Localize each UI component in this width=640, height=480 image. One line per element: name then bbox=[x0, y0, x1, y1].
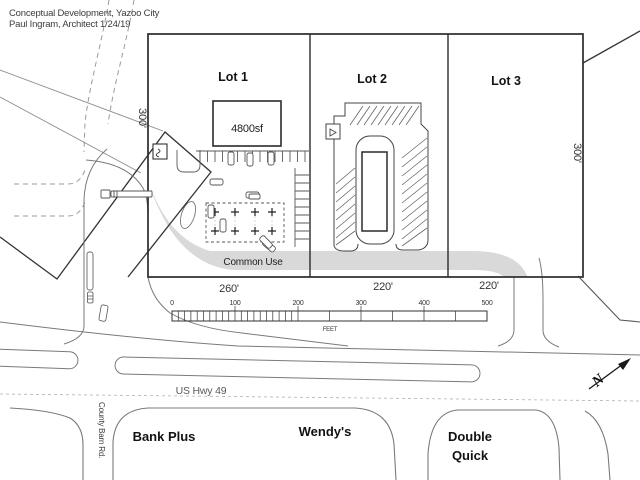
dimension-lot3-width: 220' bbox=[479, 280, 499, 292]
site-plan-sheet: 0 100 200 300 400 500 FEET N Conceptual … bbox=[0, 0, 640, 480]
title-line-1: Conceptual Development, Yazoo City bbox=[9, 8, 160, 19]
highway-label: US Hwy 49 bbox=[176, 385, 227, 397]
common-use-label: Common Use bbox=[223, 257, 283, 268]
scale-tick-0: 0 bbox=[170, 300, 174, 307]
dimension-left-depth: 300' bbox=[136, 108, 148, 128]
lot-3-label: Lot 3 bbox=[491, 74, 521, 88]
scale-unit-label: FEET bbox=[323, 327, 338, 333]
business-wendys-label: Wendy's bbox=[299, 424, 352, 439]
title-line-2: Paul Ingram, Architect 1/24/19 bbox=[9, 19, 130, 30]
highway-median-1 bbox=[0, 348, 78, 369]
dimension-lot2-width: 220' bbox=[373, 281, 393, 293]
cart-corral bbox=[326, 124, 340, 139]
scale-tick-100: 100 bbox=[229, 300, 240, 307]
lot-2-label: Lot 2 bbox=[357, 72, 387, 86]
lot-1-label: Lot 1 bbox=[218, 70, 248, 84]
business-double-quick-label-line2: Quick bbox=[452, 448, 489, 463]
side-road-label: County Barn Rd. bbox=[97, 402, 106, 458]
scale-tick-200: 200 bbox=[292, 300, 303, 307]
dimension-right-depth: 300' bbox=[571, 143, 583, 163]
kiosk-structure bbox=[153, 144, 167, 159]
scale-tick-300: 300 bbox=[355, 300, 366, 307]
site-plan-drawing: 0 100 200 300 400 500 FEET N Conceptual … bbox=[0, 0, 640, 480]
building-area-label: 4800sf bbox=[231, 123, 264, 135]
business-double-quick-label-line1: Double bbox=[448, 429, 492, 444]
scale-tick-400: 400 bbox=[418, 300, 429, 307]
scale-tick-500: 500 bbox=[481, 300, 492, 307]
dimension-lot1-width: 260' bbox=[219, 283, 239, 295]
road-median-island bbox=[87, 252, 93, 290]
business-bank-plus-label: Bank Plus bbox=[133, 429, 196, 444]
